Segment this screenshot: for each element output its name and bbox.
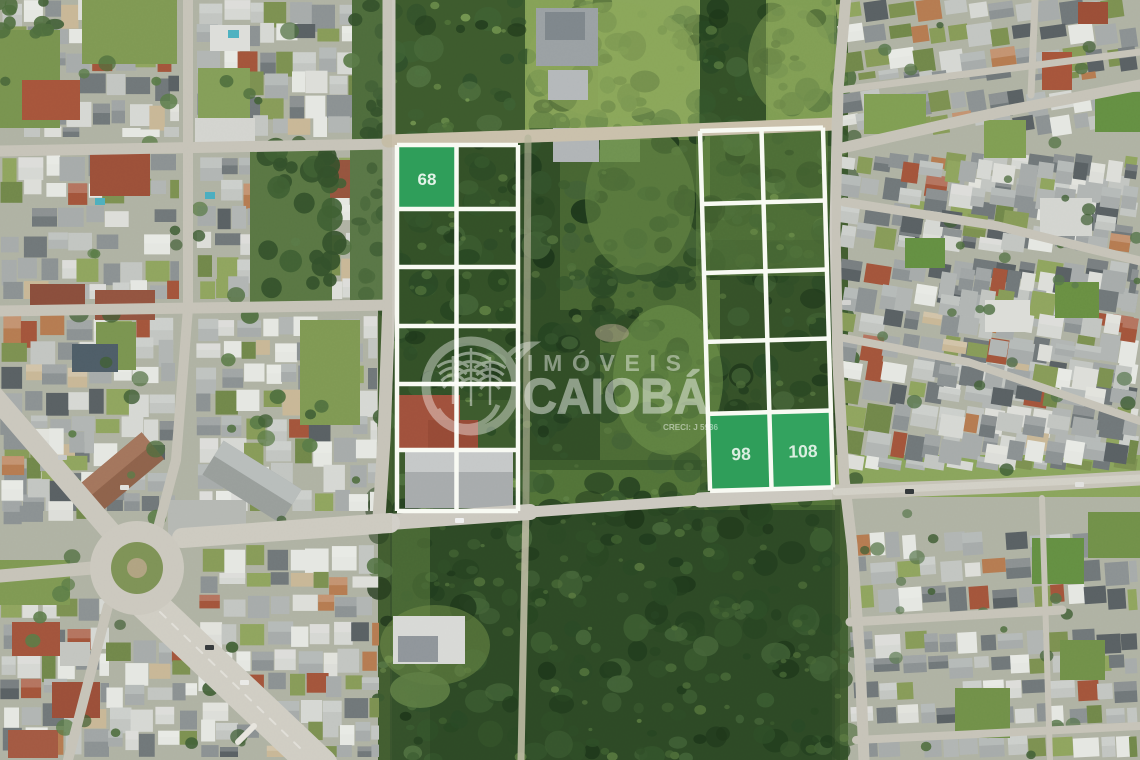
- svg-text:108: 108: [788, 441, 818, 462]
- svg-text:CAIOBÁ: CAIOBÁ: [523, 370, 708, 424]
- svg-text:68: 68: [418, 170, 437, 189]
- svg-text:98: 98: [731, 444, 751, 465]
- svg-text:CRECI: J 5936: CRECI: J 5936: [663, 422, 718, 432]
